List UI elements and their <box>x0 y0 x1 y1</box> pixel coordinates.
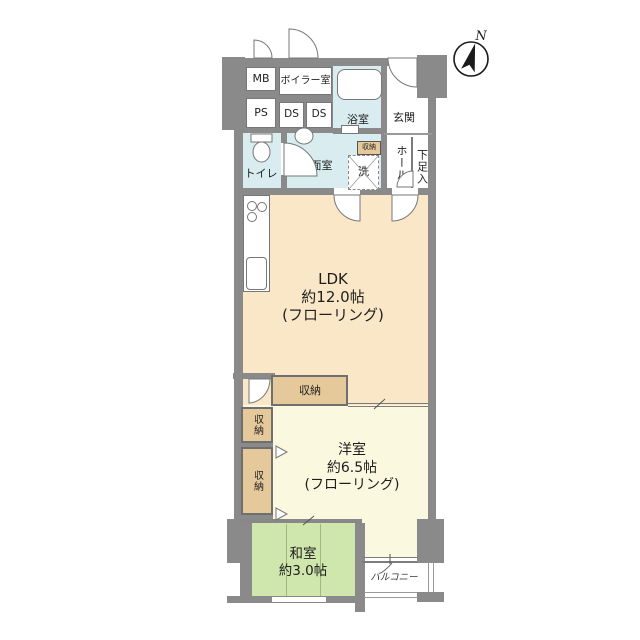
wall-closet-gap <box>241 443 273 447</box>
storage-badge-label: 収納 <box>362 144 376 152</box>
storage-top-label: 収納 <box>299 384 321 396</box>
boiler-label: ボイラー室 <box>281 76 331 87</box>
ldk-name: LDK <box>282 270 384 288</box>
balcony-railing <box>364 592 417 593</box>
bath-label: 浴室 <box>347 114 369 126</box>
ldk-size: 約12.0帖 <box>282 288 384 306</box>
mb-label: MB <box>252 73 269 85</box>
ds-left-label: DS <box>284 109 299 121</box>
balcony-railing <box>364 597 417 598</box>
door-arc-boiler <box>289 29 318 58</box>
balcony-label: バルコニー <box>370 573 417 583</box>
wall-toilet-b <box>281 175 287 188</box>
bath-door <box>341 125 359 134</box>
western-room-size: 約6.5帖 <box>305 459 400 477</box>
genkan-step-line <box>384 133 432 135</box>
bathtub <box>337 69 382 100</box>
storage-left-lower-label: 収納 <box>250 470 265 492</box>
balcony-side-line <box>428 562 429 592</box>
pillar-bottom-right <box>417 519 444 563</box>
compass-circle <box>454 42 488 76</box>
hall-shoe-divider <box>411 137 413 188</box>
wall-passage <box>233 373 275 379</box>
western-room-label: 洋室 約6.5帖 (フローリング) <box>305 442 400 495</box>
wall-top <box>234 58 390 66</box>
genkan-label: 玄関 <box>393 112 415 124</box>
door-arc-mb <box>254 40 272 58</box>
ldk-flooring: (フローリング) <box>282 306 384 324</box>
balcony-side-line <box>433 562 434 592</box>
japanese-room-label: 和室 約3.0帖 <box>279 546 327 580</box>
wall-toilet-a <box>281 133 287 143</box>
wall-bath-bottom-b <box>359 128 381 134</box>
wall-washitsu-right <box>355 523 365 612</box>
pillar-balcony-corner <box>417 592 444 602</box>
floorplan-canvas: MB ボイラー室 PS DS DS 浴室 玄関 トイレ 洗面室 洗 収納 ホール… <box>0 0 640 640</box>
japanese-room-name: 和室 <box>279 546 327 563</box>
wall-washitsu-left <box>240 563 252 597</box>
compass-arrow-icon <box>461 44 475 73</box>
western-room-flooring: (フローリング) <box>305 477 400 495</box>
ds-right-label: DS <box>312 109 327 121</box>
ps-label: PS <box>254 107 268 119</box>
japanese-room-size: 約3.0帖 <box>279 563 327 580</box>
ldk-western-line <box>348 406 428 407</box>
ldk-label: LDK 約12.0帖 (フローリング) <box>282 270 384 324</box>
hall-label: ホール <box>393 145 409 181</box>
wall-bath-bottom-a <box>333 128 341 134</box>
balcony-window-line <box>362 561 417 563</box>
balcony-window-line <box>362 557 417 559</box>
wall-ldk-top-a <box>234 188 334 195</box>
ldk-western-line <box>348 403 428 404</box>
storage-left-upper-label: 収納 <box>250 414 265 436</box>
western-room-name: 洋室 <box>305 442 400 460</box>
kitchen-sink <box>246 257 267 290</box>
wall-ldk-top-c <box>418 188 428 195</box>
washitsu-top-line <box>240 519 362 523</box>
pillar-top-right <box>417 55 447 98</box>
pillar-bottom-left <box>227 519 252 563</box>
western-room-ext-fill <box>362 520 417 557</box>
washroom-label: 洗面室 <box>300 160 333 172</box>
washitsu-window <box>272 596 326 603</box>
compass-north-label: N <box>475 30 486 44</box>
shoe-closet-label: 下足入 <box>414 149 430 185</box>
toilet-label: トイレ <box>245 168 278 180</box>
washer-label: 洗 <box>358 166 369 178</box>
